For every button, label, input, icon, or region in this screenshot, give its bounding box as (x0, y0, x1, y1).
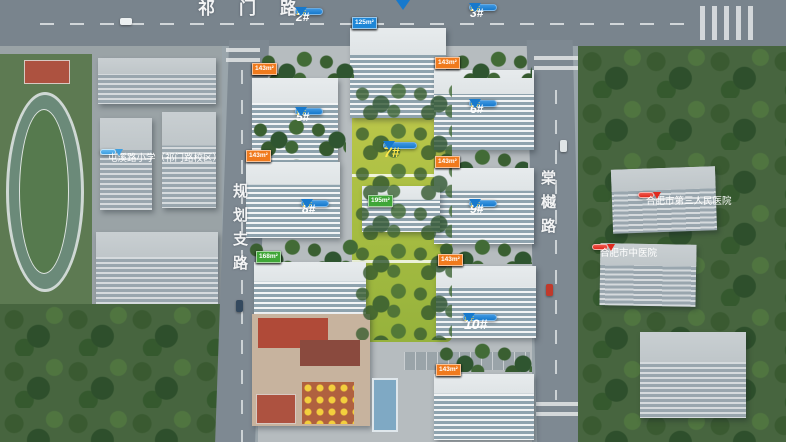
kindergarten-roof (300, 340, 360, 366)
playground (302, 382, 354, 424)
poi-school-label[interactable]: 屯溪路小学（祁门路校区） (100, 149, 116, 155)
area-tag: 143m² (438, 254, 463, 266)
site-plan-map: 祁门路 规划支路 棠樾路 125m²165m²195m²125m² 153m²1… (0, 0, 786, 442)
crosswalk (226, 48, 260, 64)
poi-hospital-third-label[interactable]: 合肥市第三人民医院 (638, 192, 654, 198)
area-tag: 195m² (368, 195, 393, 207)
area-tag: 143m² (435, 156, 460, 168)
road-label-guihua: 规划支路 (229, 183, 250, 279)
pin-tail (463, 313, 475, 328)
car (546, 284, 553, 296)
car (120, 18, 132, 25)
sports-court (24, 60, 70, 84)
school-building (96, 232, 218, 304)
building-10 (434, 374, 534, 440)
play-court (256, 394, 296, 424)
running-track (6, 92, 84, 292)
tree-cluster (452, 48, 532, 78)
crosswalk (700, 6, 758, 40)
pin-tail (301, 199, 313, 214)
car (236, 300, 243, 312)
school-building (98, 58, 216, 104)
pin-tail (295, 7, 307, 22)
stadium-field (0, 54, 92, 308)
crosswalk (534, 56, 578, 74)
poi-label-text: 合肥市中医院 (600, 247, 657, 260)
poi-label-text: 屯溪路小学（祁门路校区） (108, 152, 222, 165)
area-tag: 143m² (436, 364, 461, 376)
area-tag: 143m² (246, 150, 271, 162)
pool (372, 378, 398, 432)
map-pin-partial (396, 0, 410, 17)
school-grounds (0, 46, 222, 442)
crosswalk (536, 402, 580, 420)
car (560, 140, 567, 152)
area-tag: 143m² (435, 57, 460, 69)
pin-tail (469, 3, 481, 18)
pin-tail (469, 99, 481, 114)
stadium-infield (19, 109, 69, 274)
tree-area (0, 304, 222, 442)
area-tag: 168m² (256, 251, 281, 263)
pin-tail (469, 199, 481, 214)
lane-markings (555, 90, 557, 400)
garden-trees (352, 80, 452, 340)
pin-tail (383, 141, 395, 156)
pin-tail (295, 107, 307, 122)
hospital-building (640, 332, 746, 418)
area-tag: 143m² (252, 63, 277, 75)
poi-hospital-tcm-label[interactable]: 合肥市中医院 (592, 244, 608, 250)
area-tag: 125m² (352, 17, 377, 29)
poi-label-text: 合肥市第三人民医院 (646, 195, 732, 208)
road-label-tangyue: 棠樾路 (537, 170, 558, 242)
